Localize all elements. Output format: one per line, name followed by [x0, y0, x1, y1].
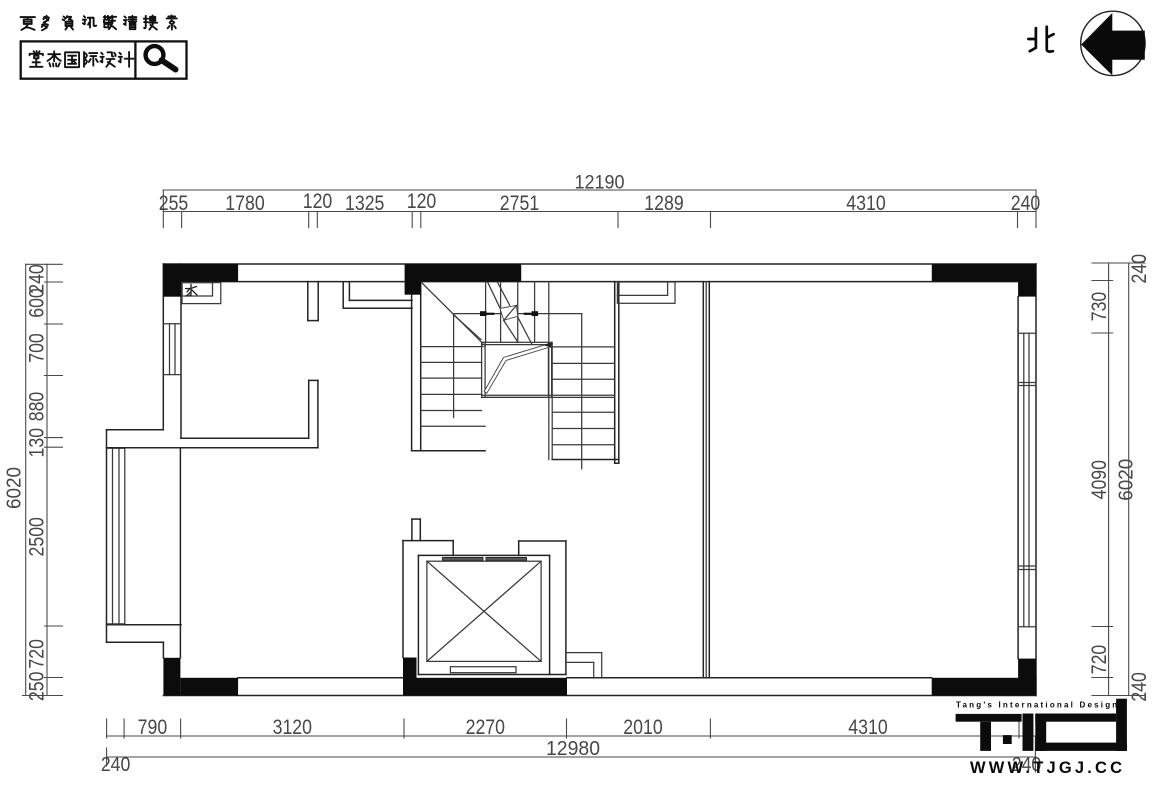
- svg-text:Tang's International Design: Tang's International Design: [956, 701, 1119, 710]
- svg-text:2270: 2270: [466, 716, 505, 739]
- svg-text:12190: 12190: [575, 173, 625, 194]
- svg-text:12980: 12980: [546, 738, 600, 760]
- svg-text:3120: 3120: [273, 716, 312, 739]
- svg-text:120: 120: [303, 190, 333, 213]
- svg-text:2010: 2010: [623, 716, 662, 739]
- svg-text:1289: 1289: [644, 192, 683, 215]
- svg-text:WWW.TJGJ.CC: WWW.TJGJ.CC: [970, 759, 1125, 777]
- svg-text:720: 720: [26, 639, 49, 669]
- svg-text:240: 240: [1128, 254, 1151, 284]
- svg-text:1780: 1780: [225, 192, 264, 215]
- svg-text:6020: 6020: [4, 467, 26, 509]
- svg-text:2751: 2751: [500, 192, 539, 215]
- svg-text:120: 120: [407, 190, 437, 213]
- svg-text:4090: 4090: [1088, 460, 1111, 499]
- svg-text:6020: 6020: [1116, 459, 1138, 501]
- svg-text:2500: 2500: [26, 517, 49, 556]
- svg-text:240: 240: [1128, 672, 1151, 702]
- svg-text:1325: 1325: [345, 192, 384, 215]
- svg-text:880: 880: [26, 392, 49, 422]
- svg-text:255: 255: [159, 192, 189, 215]
- svg-text:790: 790: [138, 716, 168, 739]
- svg-text:130: 130: [26, 428, 49, 458]
- svg-text:720: 720: [1088, 645, 1111, 675]
- svg-text:4310: 4310: [846, 192, 885, 215]
- svg-text:730: 730: [1088, 292, 1111, 322]
- svg-text:240: 240: [101, 754, 131, 776]
- svg-text:240: 240: [1011, 192, 1041, 215]
- svg-text:4310: 4310: [848, 716, 887, 739]
- svg-text:250: 250: [26, 672, 49, 702]
- svg-text:600: 600: [26, 288, 49, 318]
- svg-text:700: 700: [26, 333, 49, 363]
